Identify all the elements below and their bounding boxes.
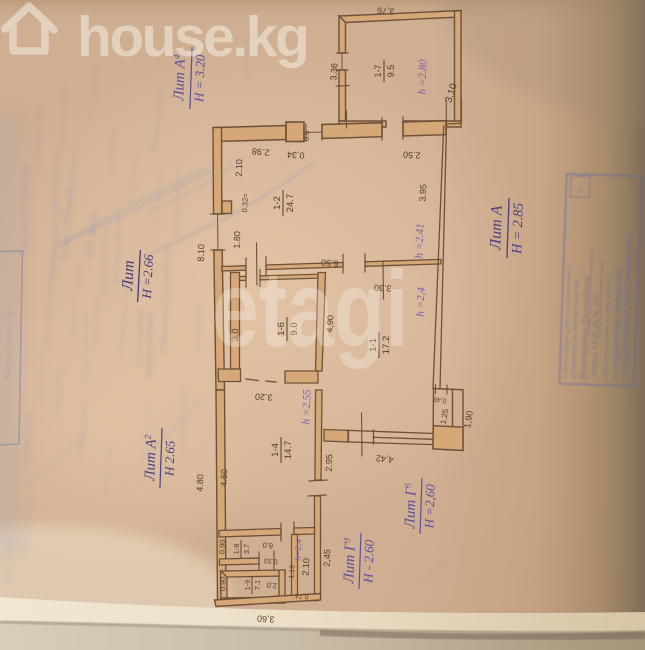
svg-text:2.98: 2.98: [251, 146, 269, 158]
svg-text:2,45: 2,45: [322, 549, 333, 567]
svg-text:3,76: 3,76: [377, 5, 395, 16]
svg-text:1-2: 1-2: [272, 196, 283, 210]
svg-text:3.95: 3.95: [418, 184, 429, 202]
svg-text:1.19: 1.19: [288, 565, 296, 579]
svg-text:h =2.80: h =2.80: [416, 59, 429, 95]
svg-text:1-4: 1-4: [270, 443, 281, 457]
svg-text:книга учета: книга учета: [21, 496, 33, 544]
svg-text:Н =2,60: Н =2,60: [421, 484, 438, 530]
svg-text:24.7: 24.7: [285, 194, 296, 213]
svg-text:1-9: 1-9: [243, 580, 252, 591]
svg-text:3.7: 3.7: [242, 544, 251, 554]
svg-text:1.80: 1.80: [232, 231, 243, 249]
svg-text:14.7: 14.7: [283, 441, 294, 460]
svg-text:0.33: 0.33: [264, 557, 278, 565]
svg-text:4.80: 4.80: [195, 474, 206, 492]
svg-text:1-7: 1-7: [373, 64, 383, 77]
svg-text:Н = 2.85: Н = 2.85: [510, 203, 527, 256]
svg-text:house.kg: house.kg: [77, 5, 307, 69]
svg-text:8.10: 8.10: [196, 244, 207, 262]
svg-text:2.95: 2.95: [324, 454, 335, 472]
svg-text:Лит Г5: Лит Г5: [401, 482, 420, 529]
svg-text:3.20: 3.20: [255, 391, 273, 402]
svg-text:h =2.55: h =2.55: [300, 389, 313, 425]
svg-text:ТЕХНИЧЕСКИЙ: ТЕХНИЧЕСКИЙ: [134, 307, 146, 367]
svg-text:8,0: 8,0: [262, 541, 273, 551]
svg-text:7.1: 7.1: [253, 580, 262, 590]
svg-text:№: №: [578, 186, 585, 193]
svg-text:4.60: 4.60: [219, 469, 230, 487]
svg-text:2.50: 2.50: [403, 149, 421, 160]
svg-text:тех паспорт: тех паспорт: [191, 304, 203, 354]
svg-text:etagi: etagi: [212, 248, 409, 370]
svg-text:3.36: 3.36: [328, 63, 339, 81]
svg-text:Н =2.66: Н =2.66: [139, 254, 156, 300]
svg-text:h =2.41: h =2.41: [413, 223, 426, 258]
svg-text:0.90: 0.90: [217, 539, 227, 554]
svg-text:0,74: 0,74: [295, 592, 309, 600]
svg-text:3,60: 3,60: [257, 613, 275, 624]
svg-text:переход прав: переход прав: [21, 412, 34, 468]
svg-text:9.5: 9.5: [386, 65, 396, 78]
svg-text:h=2,4: h=2,4: [293, 538, 304, 561]
svg-text:2,0: 2,0: [266, 581, 277, 591]
svg-text:h =2,4: h =2,4: [414, 286, 427, 316]
svg-text:1-8: 1-8: [232, 544, 241, 555]
svg-text:0.90: 0.90: [218, 576, 228, 591]
svg-text:4,42: 4,42: [375, 453, 393, 465]
svg-text:Н - 2.60: Н - 2.60: [360, 539, 377, 584]
svg-text:Лит А: Лит А: [487, 205, 506, 251]
svg-text:0.6: 0.6: [302, 131, 311, 142]
svg-text:Лит Г3: Лит Г3: [340, 537, 359, 584]
svg-text:0,34: 0,34: [287, 149, 305, 160]
